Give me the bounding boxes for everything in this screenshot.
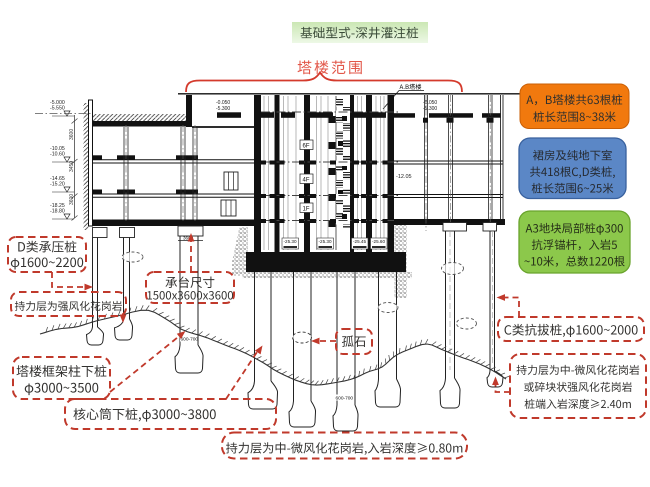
svg-text:-25.45: -25.45 — [353, 239, 366, 244]
svg-text:600-700: 600-700 — [181, 337, 199, 343]
svg-text:3450: 3450 — [69, 161, 75, 172]
svg-text:-10.60: -10.60 — [50, 152, 65, 158]
svg-text:-18.80: -18.80 — [50, 209, 65, 215]
svg-text:-25.30: -25.30 — [284, 239, 297, 244]
svg-text:-25.60: -25.60 — [372, 239, 385, 244]
svg-text:6F: 6F — [303, 144, 310, 150]
svg-text:600-700: 600-700 — [336, 396, 354, 402]
svg-text:3600: 3600 — [69, 129, 75, 140]
svg-text:4F: 4F — [303, 178, 310, 184]
svg-text:-25.30: -25.30 — [319, 239, 332, 244]
svg-text:-12.05: -12.05 — [396, 174, 412, 180]
svg-text:3600: 3600 — [69, 194, 75, 205]
svg-text:-5.300: -5.300 — [423, 106, 437, 112]
svg-text:1F: 1F — [303, 207, 310, 213]
svg-text:-5.300: -5.300 — [216, 106, 230, 112]
svg-text:-15.20: -15.20 — [50, 182, 65, 188]
svg-text:-5.550: -5.550 — [50, 106, 65, 112]
